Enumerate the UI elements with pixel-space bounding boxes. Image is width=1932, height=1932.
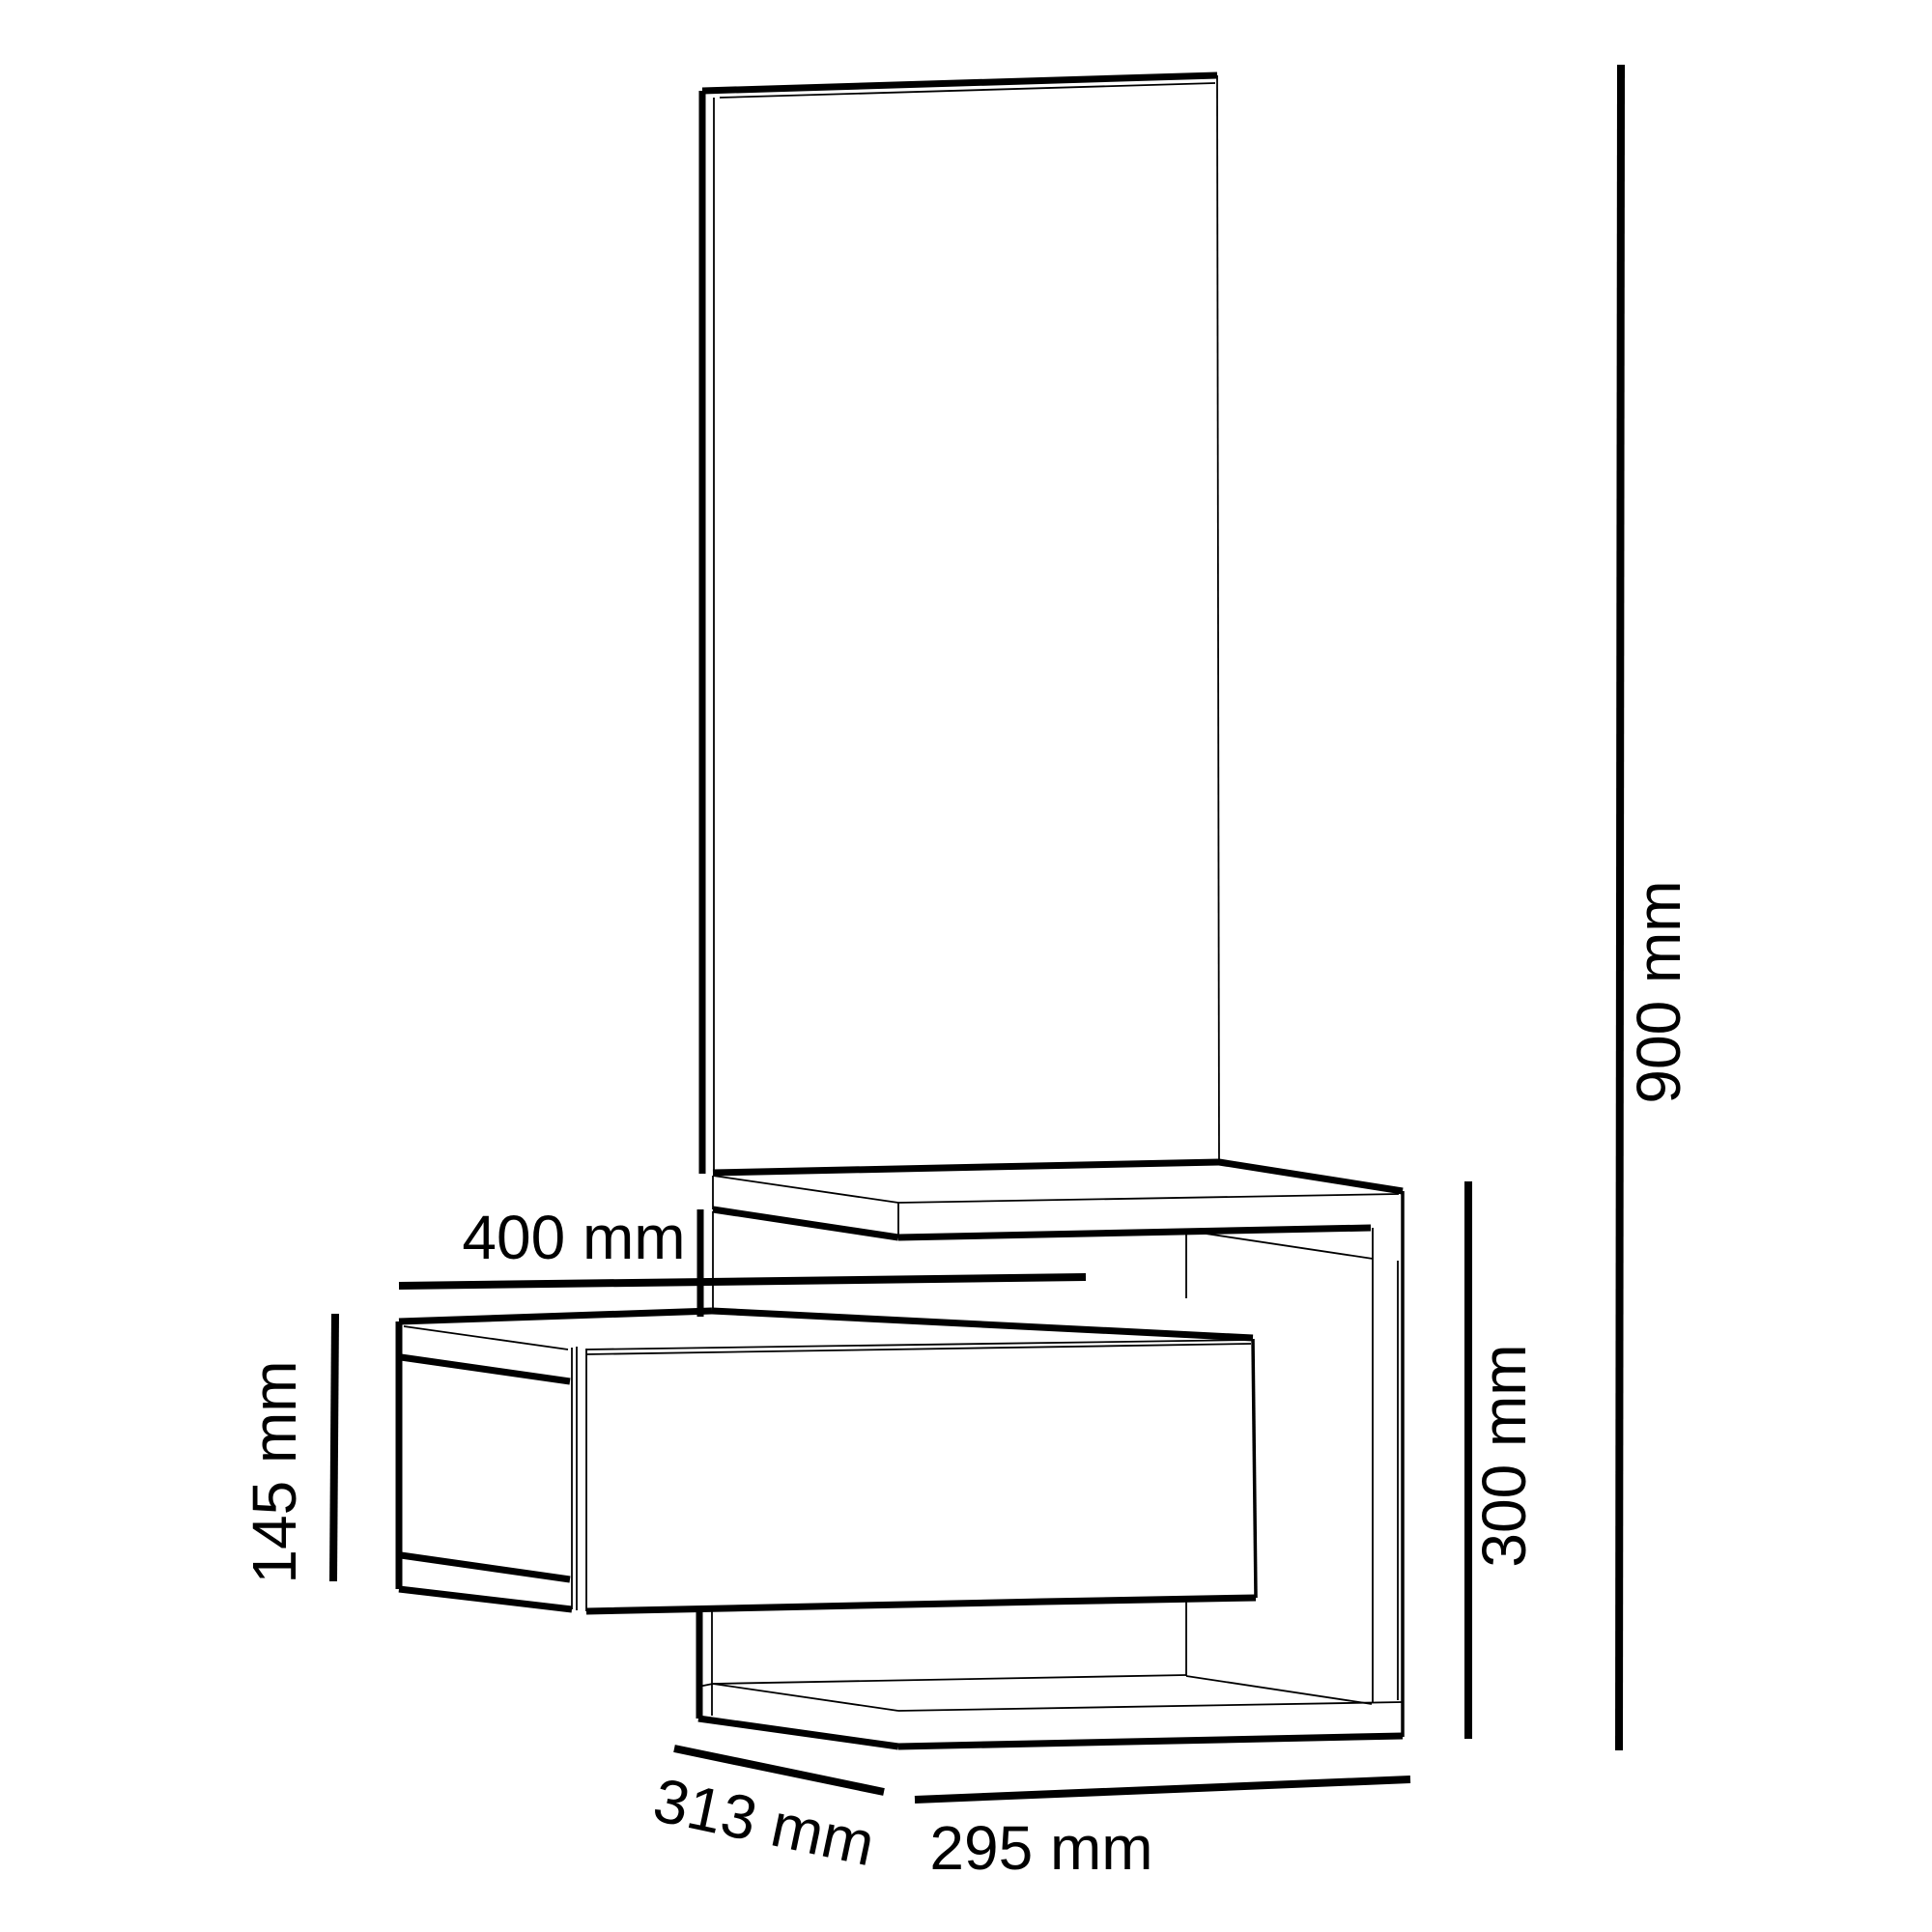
dim-label-drawer-width: 400 mm: [462, 1207, 685, 1268]
open-frame: [1186, 1191, 1403, 1737]
dim-line-900mm: [1619, 65, 1621, 1750]
dim-line-295mm: [915, 1779, 1410, 1800]
dimension-lines: [333, 65, 1621, 1800]
wall-strip-middle: [700, 1209, 713, 1317]
technical-drawing-page: 400 mm 145 mm 300 mm 900 mm 313 mm 295 m…: [0, 0, 1932, 1932]
dim-line-400mm: [399, 1277, 1086, 1286]
dim-label-frame-height: 300 mm: [1473, 1344, 1535, 1567]
mirror-panel: [702, 75, 1219, 1174]
wall-strip-lower: [699, 1609, 712, 1719]
dim-label-drawer-height: 145 mm: [243, 1360, 305, 1583]
dim-label-total-height: 900 mm: [1628, 880, 1690, 1103]
drawer: [399, 1311, 1256, 1611]
dim-label-base-width: 295 mm: [929, 1817, 1152, 1879]
base-board: [698, 1675, 1403, 1747]
dim-line-145mm: [333, 1314, 335, 1581]
middle-shelf: [713, 1162, 1403, 1237]
